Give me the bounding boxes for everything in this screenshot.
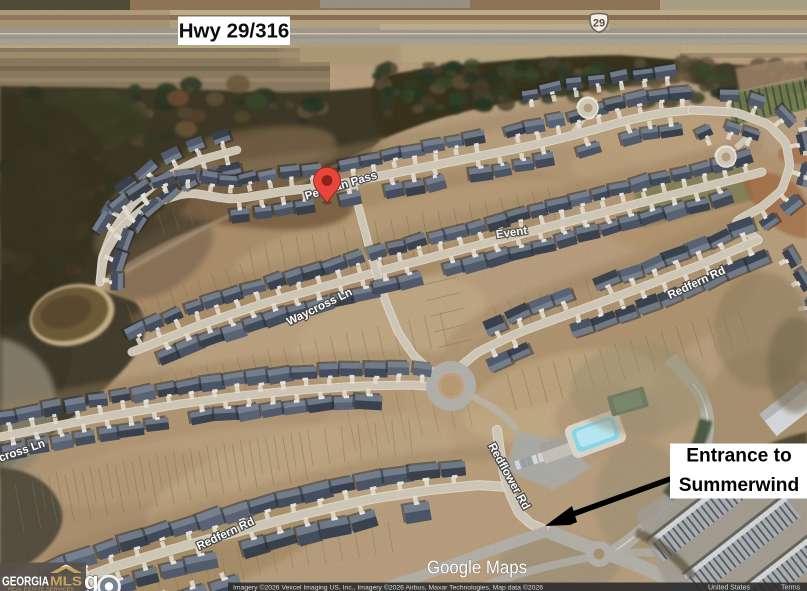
svg-text:Imagery ©2026 Vexcel Imaging U: Imagery ©2026 Vexcel Imaging US, Inc., I… bbox=[233, 584, 543, 591]
svg-text:REAL ESTATE SERVICES: REAL ESTATE SERVICES bbox=[8, 587, 74, 591]
svg-text:Hwy 29/316: Hwy 29/316 bbox=[179, 20, 290, 43]
svg-text:Summerwind: Summerwind bbox=[679, 475, 799, 496]
svg-text:Terms: Terms bbox=[781, 585, 801, 591]
svg-text:29: 29 bbox=[593, 18, 605, 30]
svg-text:g: g bbox=[84, 568, 99, 591]
svg-text:United States: United States bbox=[708, 585, 751, 591]
svg-text:Entrance to: Entrance to bbox=[686, 446, 792, 467]
svg-text:Google Maps: Google Maps bbox=[427, 557, 527, 578]
